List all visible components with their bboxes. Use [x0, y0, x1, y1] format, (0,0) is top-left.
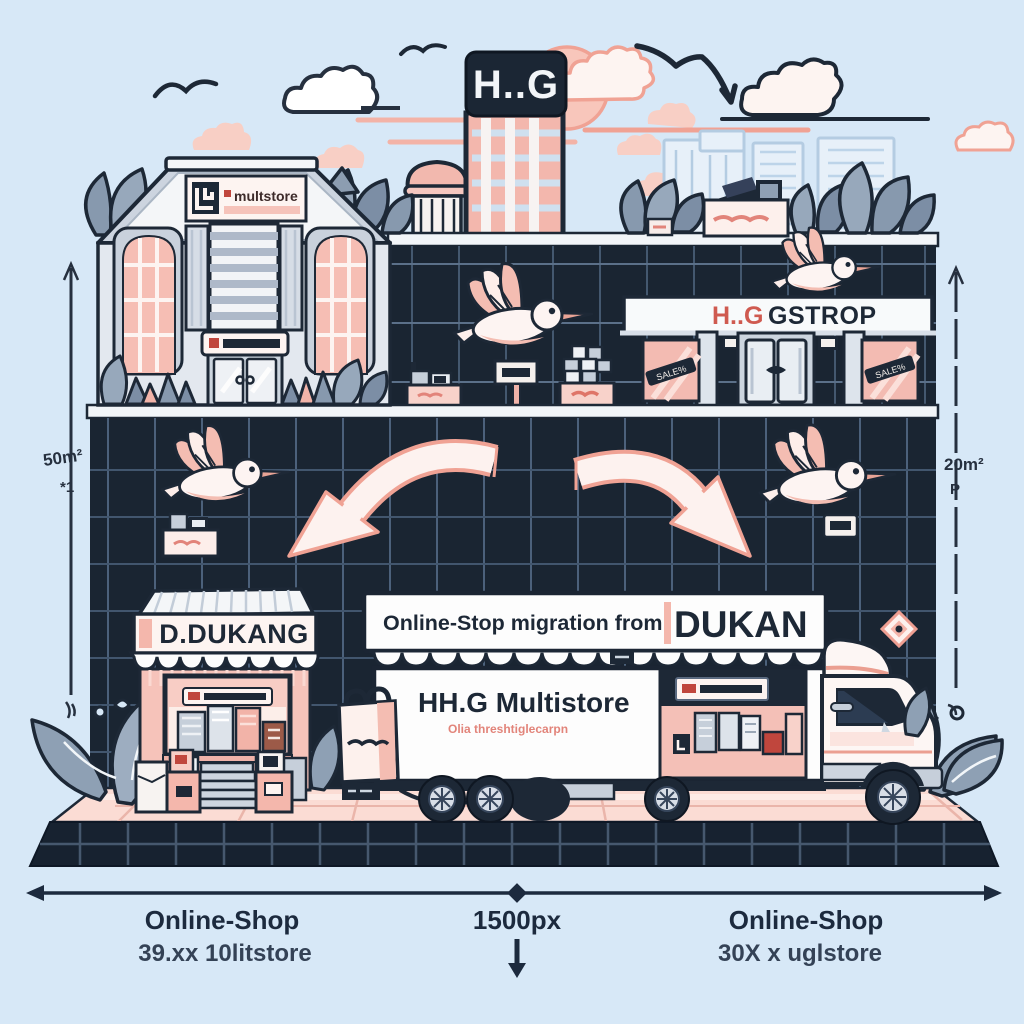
svg-text:39.xx 10litstore: 39.xx 10litstore — [138, 940, 311, 967]
svg-text:Online-Shop: Online-Shop — [145, 905, 300, 935]
svg-text:20m²: 20m² — [944, 455, 984, 474]
svg-text:D.DUKANG: D.DUKANG — [159, 619, 309, 649]
svg-text:Online-Stop migration from: Online-Stop migration from — [383, 611, 663, 635]
svg-text:*1: *1 — [60, 479, 74, 496]
svg-text:Online-Shop: Online-Shop — [729, 905, 884, 935]
svg-text:H..G: H..G — [473, 63, 559, 107]
svg-text:H..G: H..G — [712, 302, 763, 330]
svg-text:GSTROP: GSTROP — [768, 302, 877, 330]
svg-text:1500px: 1500px — [473, 905, 562, 935]
svg-text:Olia threshtiglecarpn: Olia threshtiglecarpn — [448, 722, 568, 736]
svg-text:30X x uglstore: 30X x uglstore — [718, 940, 882, 967]
svg-text:HH.G Multistore: HH.G Multistore — [418, 687, 630, 718]
svg-text:P: P — [950, 481, 960, 498]
svg-text:multstore: multstore — [234, 188, 298, 204]
svg-text:DUKAN: DUKAN — [674, 604, 808, 645]
